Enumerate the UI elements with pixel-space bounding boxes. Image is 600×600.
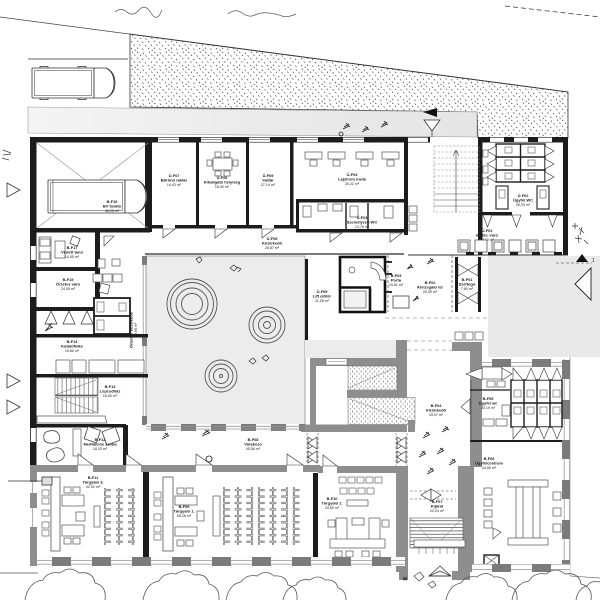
svg-text:Tárgyaló 3.: Tárgyaló 3. [82,480,103,485]
svg-text:1: 1 [592,258,595,264]
svg-text:Átvizsgáló tér: Átvizsgáló tér [417,285,444,290]
svg-text:14,50 m²: 14,50 m² [65,255,80,259]
svg-text:Kihallgató helyiség: Kihallgató helyiség [204,180,241,185]
svg-text:Irattár: Irattár [262,178,274,183]
svg-text:15,81 m²: 15,81 m² [389,283,404,287]
svg-text:Lépcsőház: Lépcsőház [100,389,121,394]
svg-text:Várakozó: Várakozó [244,442,262,447]
svg-text:18,33 m²: 18,33 m² [93,447,108,451]
svg-text:45,56 m²: 45,56 m² [246,447,261,451]
svg-text:Ügyfél wc: Ügyfél wc [479,401,498,406]
svg-text:27,14 m²: 27,14 m² [261,183,276,187]
svg-text:Meditációs szoba: Meditációs szoba [83,442,117,447]
svg-text:15,60 m²: 15,60 m² [65,349,80,353]
svg-text:Közlekedő: Közlekedő [262,241,283,246]
svg-text:46,20 m²: 46,20 m² [105,209,120,213]
svg-text:Kutatófülke: Kutatófülke [61,344,84,349]
svg-text:Lajstrom iroda: Lajstrom iroda [338,177,367,182]
svg-text:Közlekedő: Közlekedő [426,408,447,413]
svg-text:15,60 m²: 15,60 m² [103,394,118,398]
svg-text:26,25 m²: 26,25 m² [516,203,531,207]
svg-text:11,28 m²: 11,28 m² [315,299,330,303]
svg-text:Bőrönd raktár: Bőrönd raktár [161,178,188,183]
svg-text:22,24 m²: 22,24 m² [430,509,445,513]
svg-text:7,80 m²: 7,80 m² [461,287,474,291]
svg-text:Személyzeti WC: Személyzeti WC [347,220,378,225]
svg-text:Porta: Porta [391,278,402,283]
svg-text:Előtér, váró: Előtér, váró [476,233,498,238]
svg-text:26,87 m²: 26,87 m² [265,246,280,250]
svg-text:14,43 m²: 14,43 m² [167,183,182,187]
svg-text:43,07 m²: 43,07 m² [429,413,444,417]
svg-text:65,26 m²: 65,26 m² [177,514,192,518]
svg-text:Szélfogó: Szélfogó [459,282,476,287]
svg-text:Lift előtér: Lift előtér [313,294,332,299]
svg-text:18,00 m²: 18,00 m² [215,185,230,189]
svg-text:BV beálló: BV beálló [103,204,122,209]
svg-text:33,80 m²: 33,80 m² [325,506,340,510]
svg-text:Ügyfél WC: Ügyfél WC [513,198,533,203]
svg-text:30,19 m²: 30,19 m² [481,406,496,410]
svg-text:Védett tanú: Védett tanú [61,250,83,255]
svg-text:Tárgyaló 2.: Tárgyaló 2. [321,501,342,506]
svg-text:Ügyfélcentrum: Ügyfélcentrum [475,461,503,466]
svg-text:20,39 m²: 20,39 m² [423,290,438,294]
svg-text:30,22 m²: 30,22 m² [345,182,360,186]
svg-text:24,00 m²: 24,00 m² [61,287,76,291]
svg-text:13,76 m²: 13,76 m² [355,225,370,229]
svg-text:44,55 m²: 44,55 m² [482,466,497,470]
svg-text:42,92 m²: 42,92 m² [86,485,101,489]
svg-text:Tárgyaló 1.: Tárgyaló 1. [173,509,194,514]
svg-text:Őrzetes váró: Őrzetes váró [56,282,81,287]
svg-text:Kijárat: Kijárat [431,504,444,509]
svg-text:60: 60 [403,577,407,581]
